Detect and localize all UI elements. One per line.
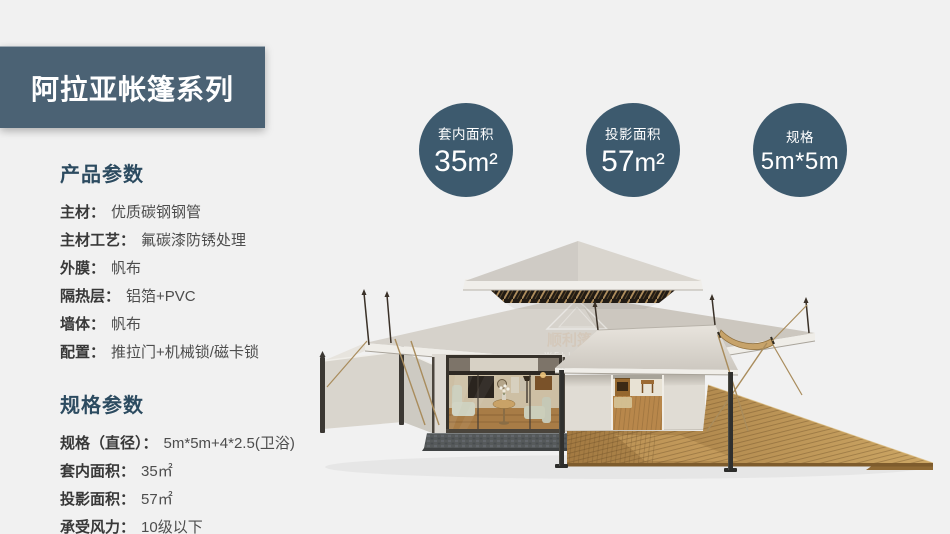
product-params-heading: 产品参数: [60, 158, 410, 187]
stone-plinth: [422, 433, 570, 451]
badge-value: 5m*5m: [761, 149, 840, 174]
param-row-material: 主材： 优质碳钢钢管: [60, 199, 410, 227]
main-body: [432, 354, 565, 433]
badge-size: 规格 5m*5m: [753, 103, 847, 197]
cap-roof: [463, 241, 703, 309]
badge-interior-area: 套内面积 35m²: [419, 103, 513, 197]
page-title: 阿拉亚帐篷系列: [31, 68, 234, 108]
badge-label: 规格: [786, 126, 814, 146]
tent-product-image: 顺利篷房 WELL-TENT: [315, 235, 950, 520]
badge-label: 套内面积: [438, 123, 494, 143]
panel-post-left: [320, 357, 325, 433]
annex-doorway: [611, 375, 664, 430]
badge-value: 35m²: [434, 146, 498, 178]
window-interior: [449, 372, 559, 429]
badge-value: 57m²: [601, 146, 665, 178]
title-banner: 阿拉亚帐篷系列: [0, 46, 265, 128]
annex-body: [565, 373, 705, 432]
badge-label: 投影面积: [605, 123, 661, 143]
product-flyer: 阿拉亚帐篷系列 套内面积 35m² 投影面积 57m² 规格 5m*5m 产品参…: [0, 0, 950, 534]
badge-projection-area: 投影面积 57m²: [586, 103, 680, 197]
